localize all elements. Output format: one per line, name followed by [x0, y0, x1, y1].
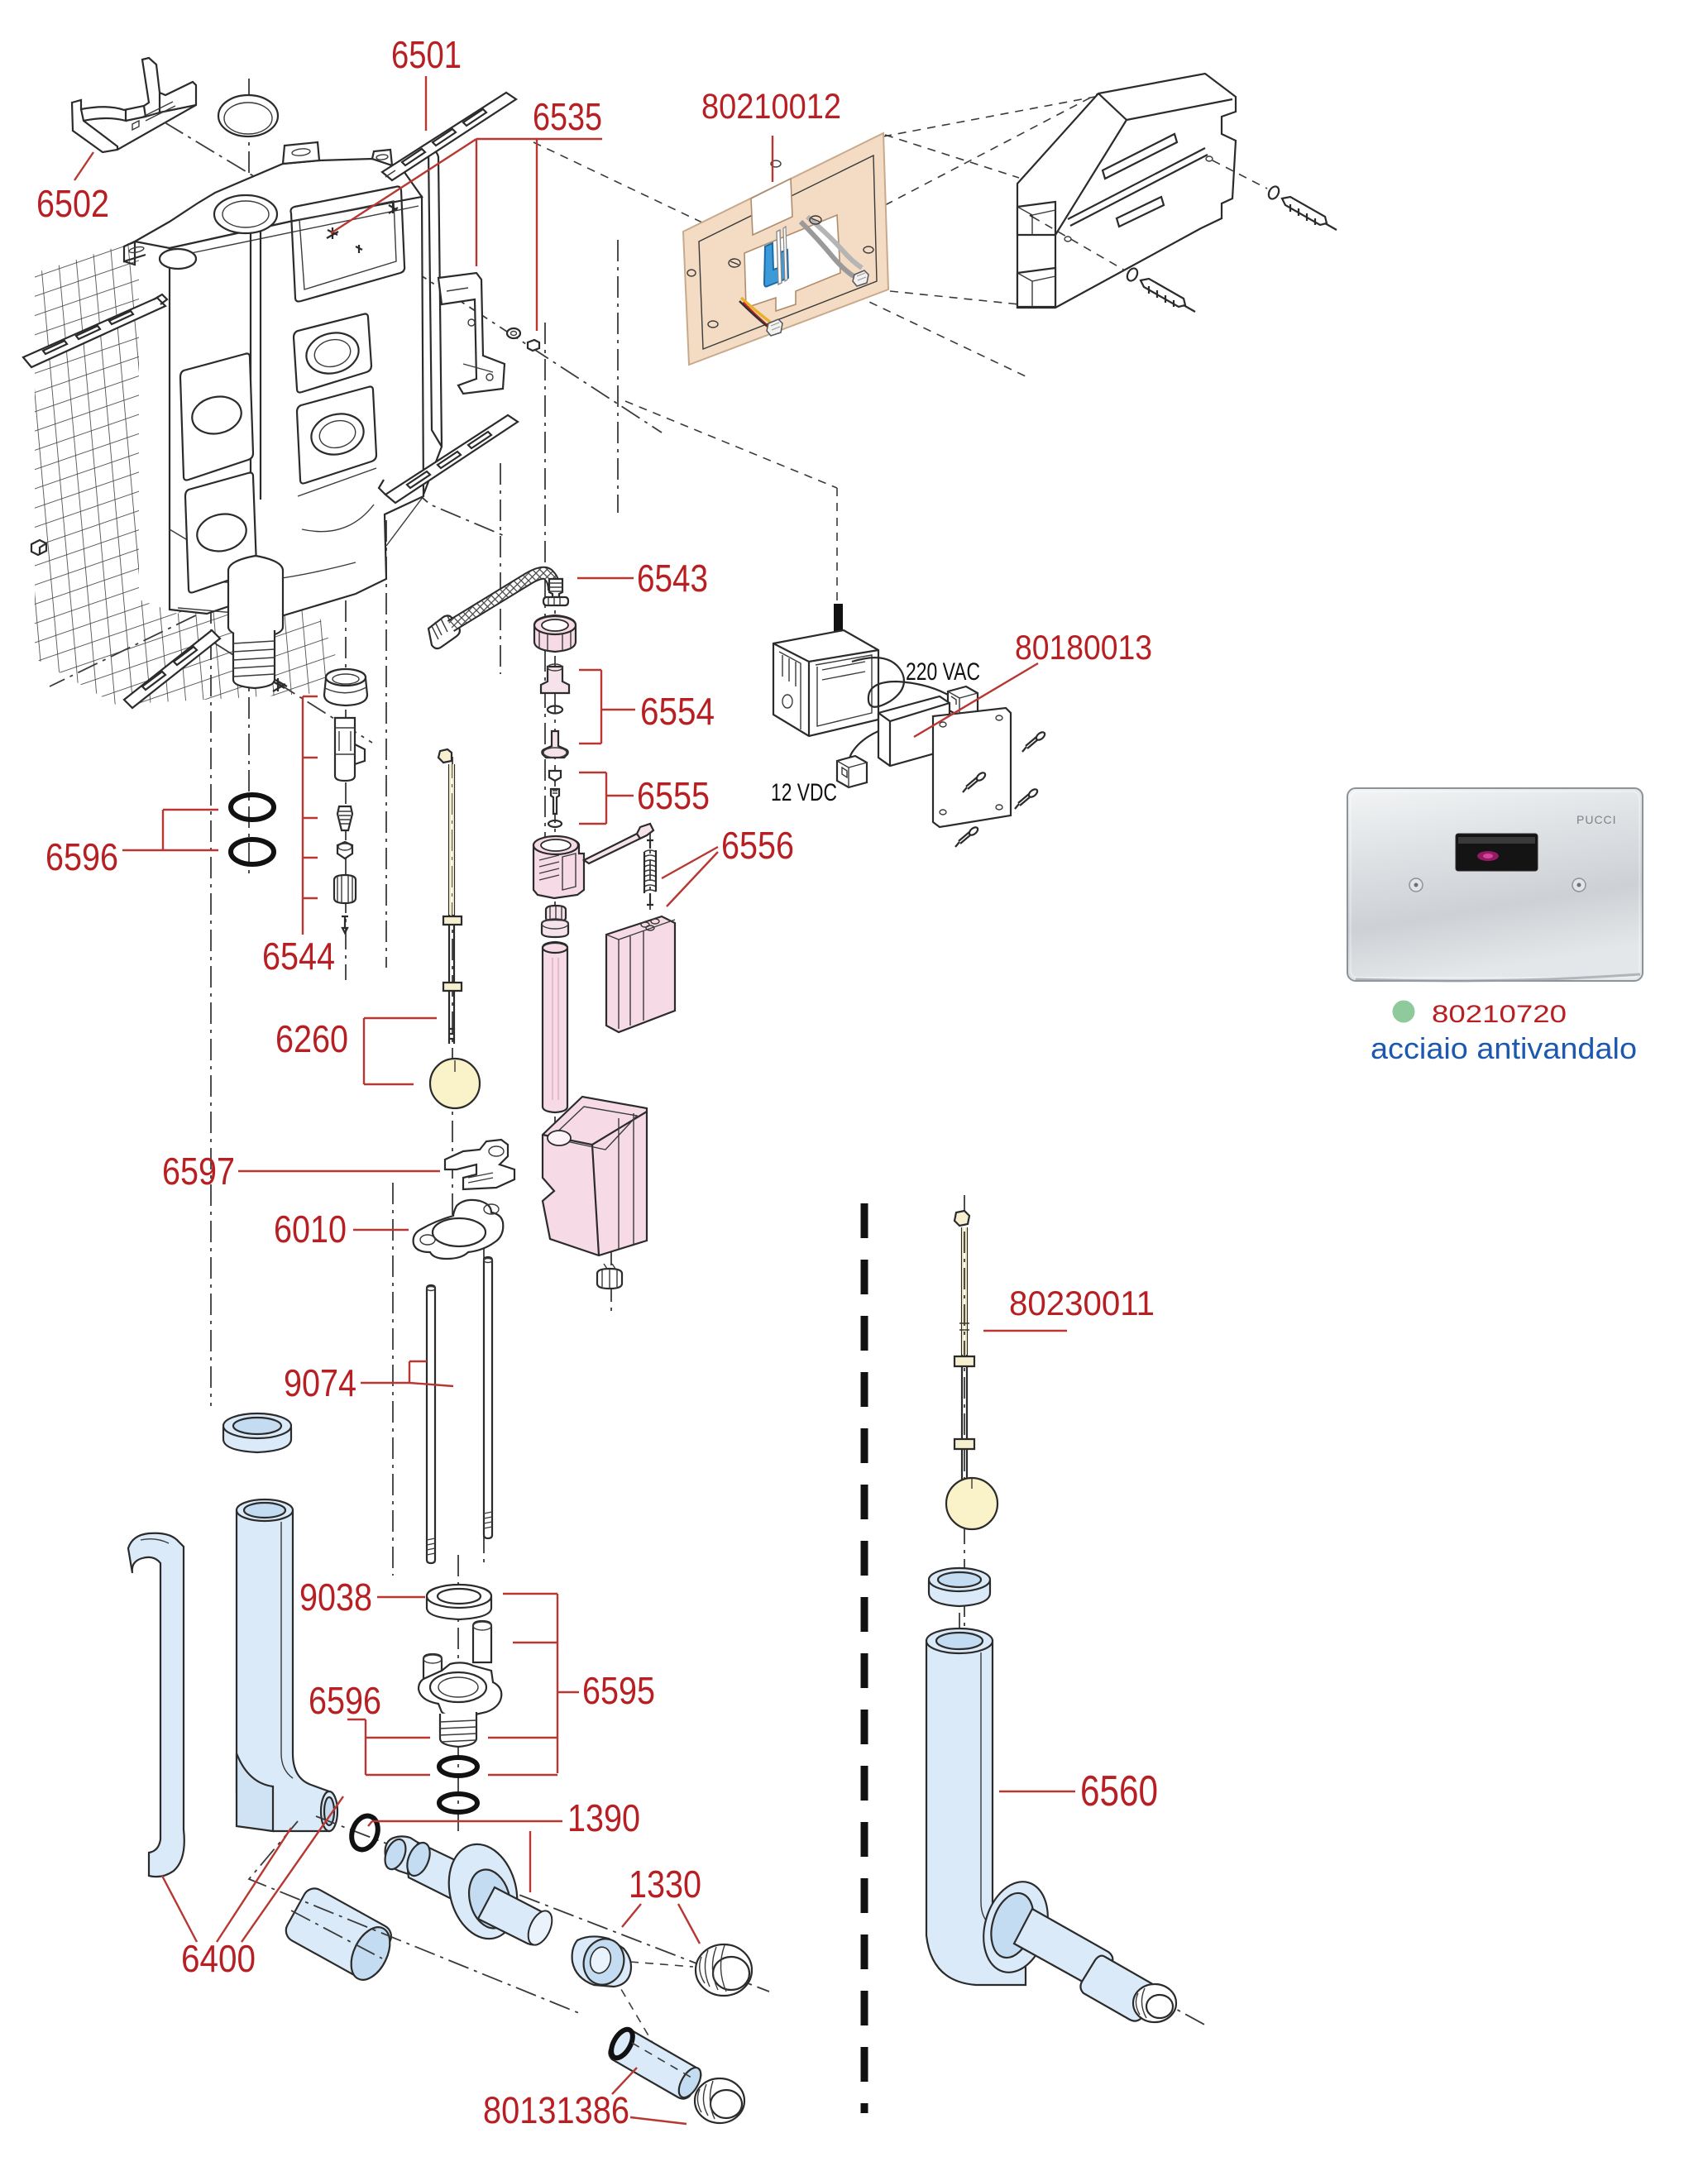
svg-text:6596: 6596	[309, 1679, 381, 1722]
svg-text:9038: 9038	[299, 1576, 372, 1619]
svg-text:acciaio antivandalo: acciaio antivandalo	[1371, 1031, 1637, 1065]
svg-text:6400: 6400	[181, 1937, 256, 1980]
svg-text:6502: 6502	[36, 182, 109, 225]
svg-text:6595: 6595	[582, 1669, 655, 1712]
svg-text:6501: 6501	[391, 33, 462, 76]
svg-text:6554: 6554	[640, 690, 715, 733]
svg-text:80180013: 80180013	[1015, 628, 1152, 667]
svg-text:PUCCI: PUCCI	[1576, 813, 1617, 826]
svg-text:220 VAC: 220 VAC	[906, 658, 980, 686]
svg-text:6010: 6010	[274, 1208, 347, 1251]
svg-text:6597: 6597	[162, 1150, 235, 1193]
svg-text:80230011: 80230011	[1009, 1284, 1155, 1322]
svg-text:80210012: 80210012	[701, 87, 841, 127]
svg-text:6596: 6596	[45, 835, 118, 878]
svg-text:6556: 6556	[721, 824, 794, 867]
svg-text:80210720: 80210720	[1432, 1001, 1567, 1028]
svg-text:6543: 6543	[637, 557, 708, 600]
svg-text:6260: 6260	[275, 1017, 348, 1060]
svg-text:6560: 6560	[1080, 1767, 1158, 1815]
svg-text:6555: 6555	[637, 774, 710, 817]
svg-text:1390: 1390	[567, 1796, 640, 1839]
svg-text:6535: 6535	[533, 95, 602, 138]
svg-text:9074: 9074	[284, 1361, 356, 1404]
svg-text:80131386: 80131386	[483, 2089, 629, 2131]
svg-text:6544: 6544	[262, 935, 335, 978]
svg-text:12 VDC: 12 VDC	[771, 779, 837, 806]
svg-text:1330: 1330	[629, 1863, 701, 1906]
